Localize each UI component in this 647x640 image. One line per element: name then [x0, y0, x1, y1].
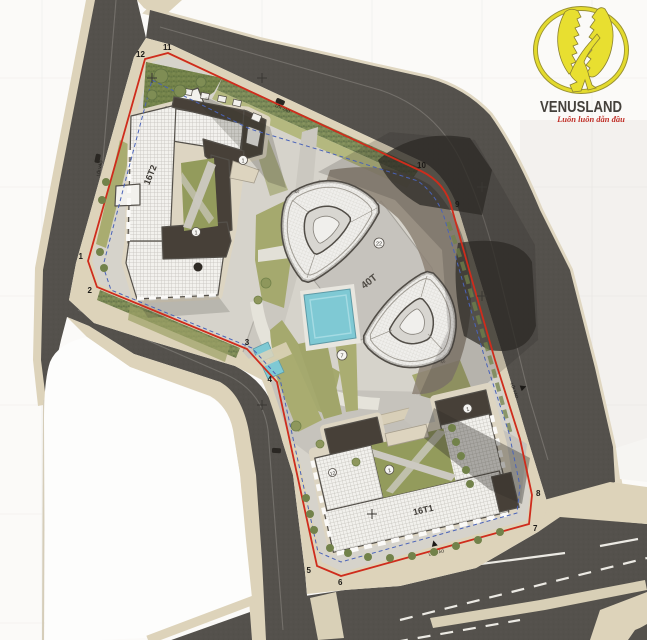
- svg-text:12: 12: [136, 50, 145, 59]
- svg-text:1: 1: [79, 252, 84, 261]
- svg-text:2: 2: [88, 286, 93, 295]
- svg-text:22: 22: [376, 242, 382, 248]
- svg-text:11: 11: [163, 43, 172, 52]
- svg-text:10: 10: [417, 161, 426, 170]
- svg-text:7: 7: [340, 354, 343, 360]
- svg-text:5: 5: [307, 566, 312, 575]
- svg-text:4: 4: [268, 375, 273, 384]
- svg-text:1: 1: [194, 231, 197, 237]
- svg-text:8: 8: [536, 489, 541, 498]
- svg-text:9: 9: [455, 200, 460, 209]
- svg-text:7: 7: [533, 524, 538, 533]
- svg-text:3: 3: [245, 338, 250, 347]
- svg-text:1: 1: [241, 159, 244, 165]
- svg-text:Luôn luôn dẫn đầu: Luôn luôn dẫn đầu: [556, 114, 625, 124]
- svg-text:6: 6: [338, 578, 343, 587]
